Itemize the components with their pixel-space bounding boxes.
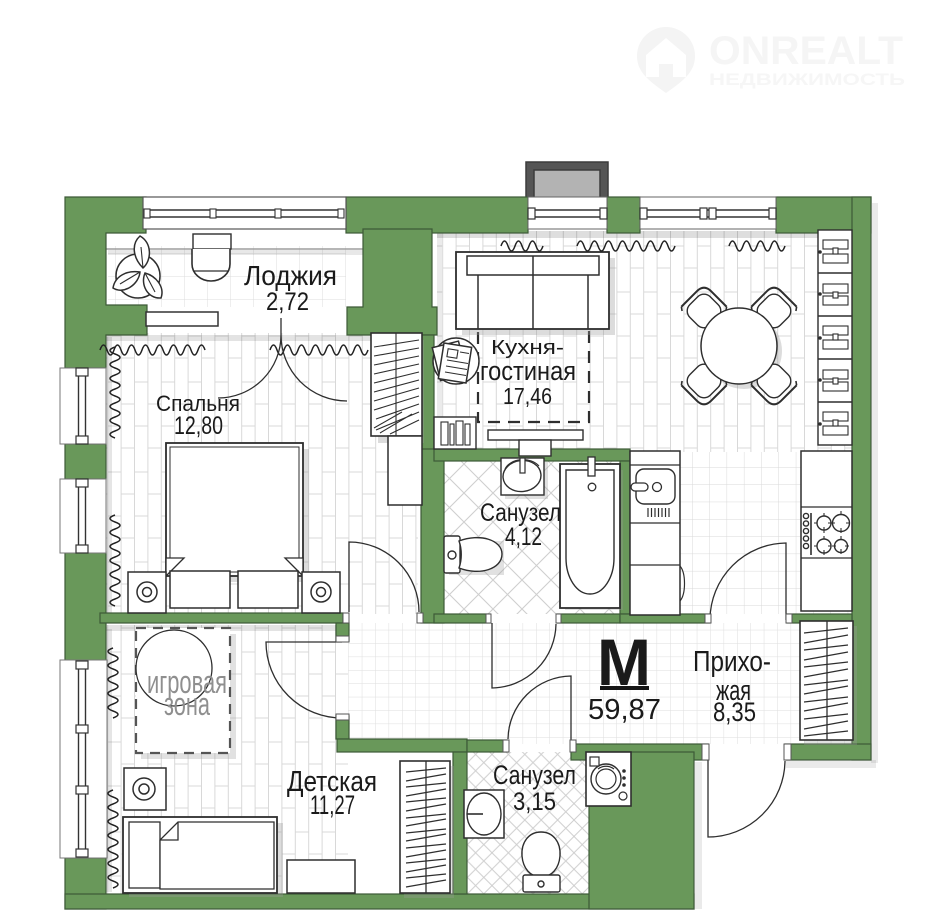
svg-text:3,15: 3,15 — [513, 788, 556, 816]
svg-text:зона: зона — [164, 686, 210, 722]
svg-text:59,87: 59,87 — [588, 694, 661, 726]
svg-text:17,46: 17,46 — [503, 383, 552, 409]
svg-text:Лоджия: Лоджия — [244, 260, 337, 291]
svg-text:Прихо-: Прихо- — [693, 646, 771, 678]
svg-text:НЕДВИЖИМОСТЬ: НЕДВИЖИМОСТЬ — [709, 70, 905, 89]
svg-text:гостиная: гостиная — [480, 356, 576, 386]
svg-text:12,80: 12,80 — [174, 412, 223, 440]
svg-text:8,35: 8,35 — [713, 697, 756, 727]
svg-text:Санузел: Санузел — [493, 760, 576, 790]
svg-text:2,72: 2,72 — [266, 288, 309, 316]
svg-text:4,12: 4,12 — [505, 523, 542, 551]
svg-text:11,27: 11,27 — [310, 790, 355, 820]
svg-text:ONREALT: ONREALT — [709, 29, 903, 73]
